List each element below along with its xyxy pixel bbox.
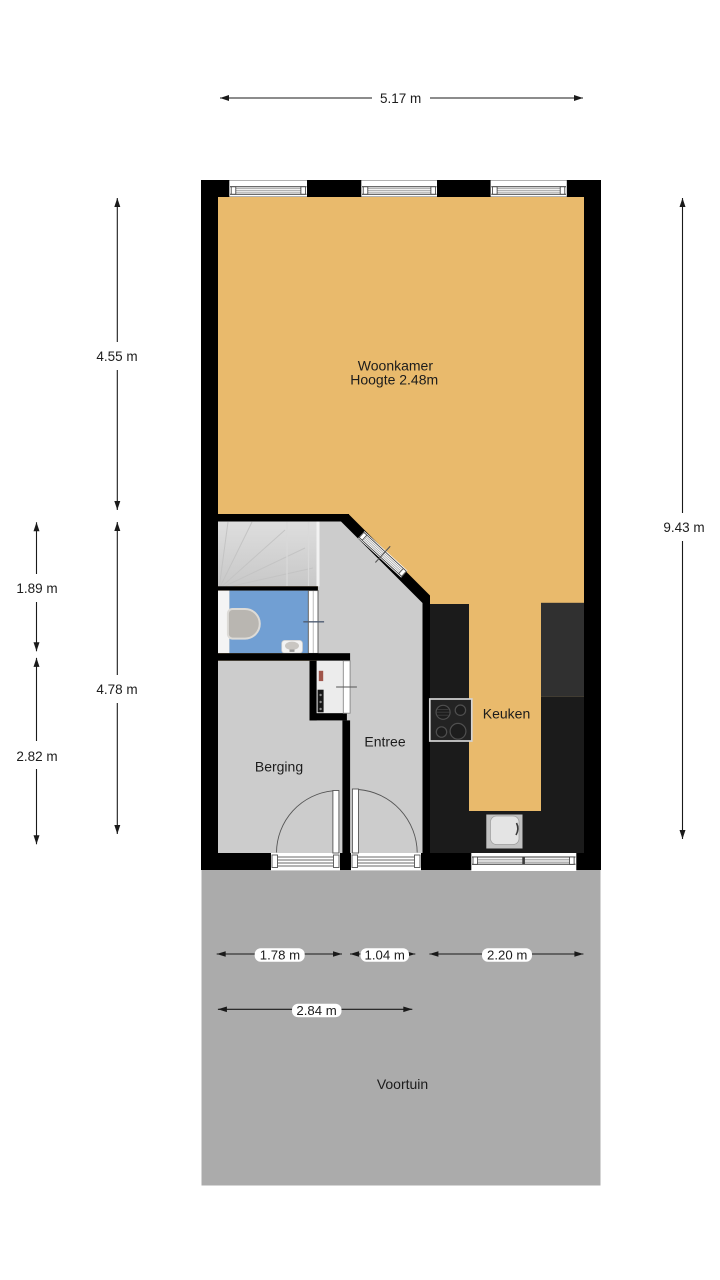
svg-text:4.78 m: 4.78 m — [96, 682, 137, 697]
svg-text:2.20 m: 2.20 m — [487, 947, 527, 962]
svg-text:Entree: Entree — [364, 733, 405, 749]
svg-text:4.55 m: 4.55 m — [96, 349, 137, 364]
svg-text:1.89 m: 1.89 m — [16, 581, 57, 596]
svg-text:Keuken: Keuken — [483, 705, 530, 721]
svg-text:Berging: Berging — [255, 758, 303, 774]
svg-text:1.78 m: 1.78 m — [260, 947, 300, 962]
svg-text:2.84 m: 2.84 m — [296, 1003, 336, 1018]
svg-text:1.04 m: 1.04 m — [365, 947, 405, 962]
svg-text:9.43 m: 9.43 m — [663, 520, 704, 535]
svg-text:Voortuin: Voortuin — [377, 1076, 428, 1092]
svg-text:Hoogte 2.48m: Hoogte 2.48m — [350, 372, 438, 388]
svg-text:2.82 m: 2.82 m — [16, 749, 57, 764]
svg-text:5.17 m: 5.17 m — [380, 91, 421, 106]
